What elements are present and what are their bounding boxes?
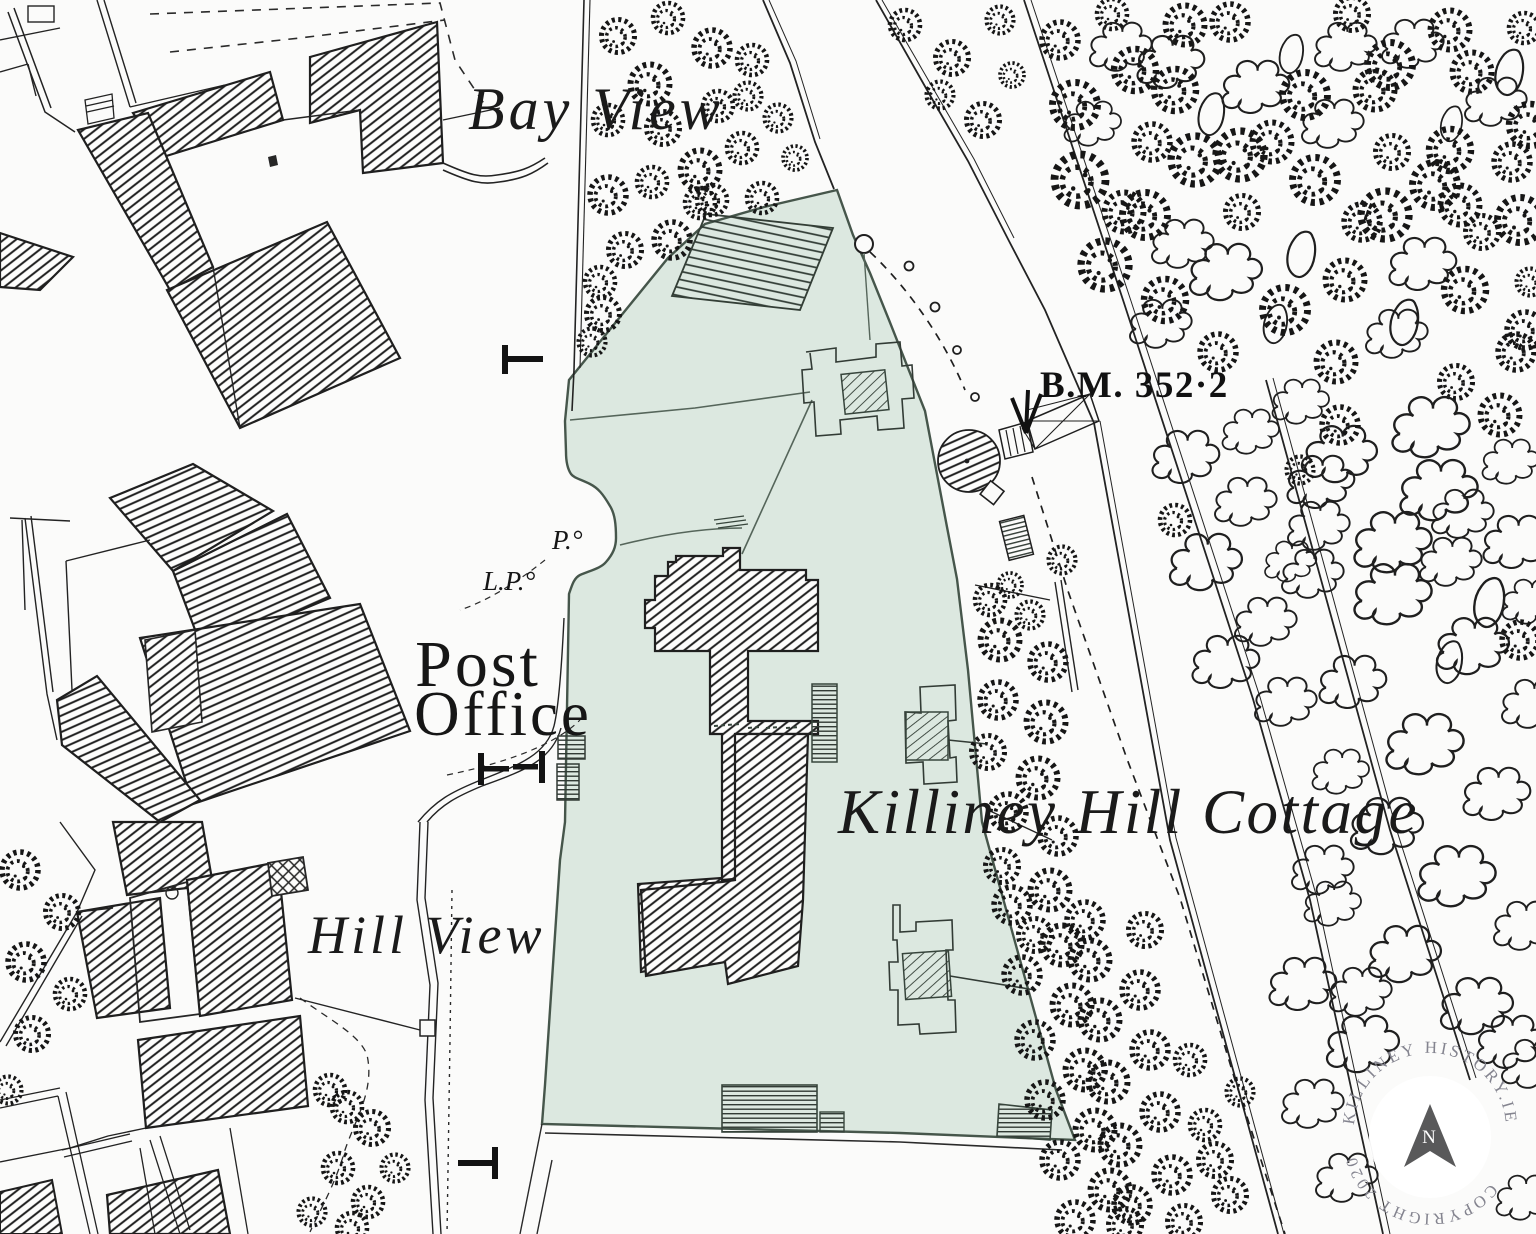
svg-text:L.P.°: L.P.° — [482, 566, 536, 596]
svg-text:Killiney Hill Cottage: Killiney Hill Cottage — [837, 777, 1419, 847]
svg-text:Hill View: Hill View — [307, 905, 545, 965]
svg-text:P.°: P.° — [551, 525, 583, 555]
svg-text:Bay View: Bay View — [468, 76, 724, 142]
svg-text:B.M. 352·2: B.M. 352·2 — [1040, 365, 1229, 406]
svg-text:N: N — [1422, 1127, 1436, 1148]
